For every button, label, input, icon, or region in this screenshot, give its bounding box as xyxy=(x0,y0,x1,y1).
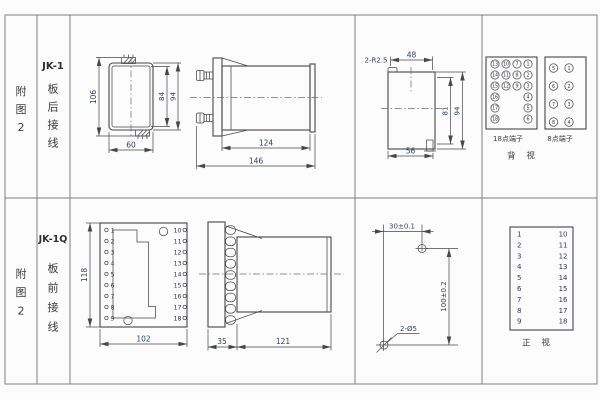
dim-100: 100±0.2 xyxy=(440,281,448,311)
fig-label-char: 图 xyxy=(16,103,27,116)
right-terminal-column: 10 11 12 13 14 15 16 17 18 xyxy=(173,227,186,322)
wiring-char: 后 xyxy=(48,101,59,114)
pin-number: 8 xyxy=(111,304,115,311)
table-grid xyxy=(5,15,597,384)
dim-81: 81 xyxy=(442,107,450,116)
table-cell: 18 xyxy=(559,318,568,326)
pin-number: 13 xyxy=(173,260,181,267)
pin-number: 11 xyxy=(173,238,181,245)
pin-number: 3 xyxy=(111,249,115,256)
figure-label-top: 附 图 2 xyxy=(16,84,27,134)
table-cell: 2 xyxy=(517,241,521,249)
model-label: JK-1Q xyxy=(38,234,68,245)
table-cell: 9 xyxy=(517,318,521,326)
wiring-label-top: JK-1 板 后 接 线 xyxy=(41,61,64,150)
case-side-view: 124 146 xyxy=(190,58,322,169)
terminal-8-caption: 8点端子 xyxy=(547,134,572,143)
pin-number: 10 xyxy=(173,227,181,234)
wiring-label-bottom: JK-1Q 板 前 接 线 xyxy=(38,234,68,334)
terminal-number: 4 xyxy=(526,95,529,101)
dim-60: 60 xyxy=(126,141,136,150)
table-cell: 10 xyxy=(559,231,568,239)
dim-118: 118 xyxy=(80,268,89,283)
dim-94: 94 xyxy=(170,92,178,101)
terminal-number: 4 xyxy=(567,120,570,126)
wiring-char: 接 xyxy=(48,119,59,132)
diagram-canvas: 附 图 2 JK-1 板 后 接 线 附 图 2 JK-1Q 板 前 接 线 xyxy=(0,0,600,400)
terminal-number: 9 xyxy=(515,84,518,90)
front-wiring-outline-view: 1 2 3 4 5 6 7 8 9 10 11 12 13 14 15 16 1… xyxy=(80,223,187,347)
left-terminal-column: 1 2 3 4 5 6 7 8 9 xyxy=(105,227,115,322)
terminal-number: 5 xyxy=(552,66,555,72)
dim-48: 48 xyxy=(407,51,417,60)
terminal-number: 17 xyxy=(492,106,498,112)
table-right-column: 10 11 12 13 14 15 16 17 18 xyxy=(559,231,568,326)
mounting-hole-view: 30±0.1 100±0.2 2-Ø5 xyxy=(372,223,458,353)
terminal-number: 8 xyxy=(515,73,518,79)
terminal-number: 6 xyxy=(526,117,529,123)
terminal-8-layout: 5 1 6 2 7 3 8 4 8点端子 xyxy=(545,57,586,143)
terminal-number: 10 xyxy=(503,62,509,68)
dim-94b: 94 xyxy=(454,106,462,115)
terminal-number: 18 xyxy=(492,117,498,123)
wiring-char: 线 xyxy=(48,320,59,334)
pin-number: 4 xyxy=(111,260,115,267)
pin-number: 17 xyxy=(173,304,181,311)
pin-number: 2 xyxy=(111,238,115,245)
table-cell: 13 xyxy=(559,263,568,271)
terminal-number: 7 xyxy=(552,102,555,108)
fig-label-char: 附 xyxy=(16,84,27,98)
terminal-number: 8 xyxy=(552,120,555,126)
terminal-number: 1 xyxy=(526,62,529,68)
terminal-number: 12 xyxy=(503,84,509,90)
table-cell: 12 xyxy=(559,252,568,260)
table-cell: 17 xyxy=(559,307,568,315)
table-cell: 6 xyxy=(517,285,522,293)
screw-column xyxy=(226,226,236,325)
dim-121: 121 xyxy=(276,337,291,346)
screw-terminal xyxy=(197,113,214,123)
table-cell: 7 xyxy=(517,296,521,304)
dim-124: 124 xyxy=(259,139,274,148)
terminal-number: 13 xyxy=(492,62,498,68)
wiring-char: 前 xyxy=(48,281,59,295)
pin-number: 1 xyxy=(111,227,115,234)
pin-number: 15 xyxy=(173,282,181,289)
rear-view-caption: 背 视 xyxy=(507,151,539,162)
pin-number: 5 xyxy=(111,271,115,278)
model-label: JK-1 xyxy=(41,61,64,72)
terminal-number: 2 xyxy=(567,84,570,90)
terminal-cells: 13 10 7 1 14 11 8 2 15 12 9 3 16 4 17 5 … xyxy=(491,60,532,123)
figure-label-bottom: 附 图 2 xyxy=(16,267,27,318)
terminal-18-caption: 18点端子 xyxy=(493,134,523,143)
table-cell: 5 xyxy=(517,274,521,282)
case-rear-outline-view: 106 84 94 60 xyxy=(89,55,181,154)
screw-terminal xyxy=(197,71,214,81)
pin-number: 12 xyxy=(173,249,181,256)
table-cell: 14 xyxy=(559,274,568,282)
fig-label-char: 图 xyxy=(16,286,27,299)
dim-106: 106 xyxy=(89,90,98,105)
terminal-number: 3 xyxy=(526,84,529,90)
drawing-sheet: 附 图 2 JK-1 板 后 接 线 附 图 2 JK-1Q 板 前 接 线 xyxy=(0,0,600,400)
pin-number: 14 xyxy=(173,271,181,278)
terminal-number: 3 xyxy=(567,102,570,108)
dim-30: 30±0.1 xyxy=(389,223,415,231)
terminal-number: 5 xyxy=(526,106,529,112)
wiring-char: 板 xyxy=(48,261,59,275)
dim-56: 56 xyxy=(406,147,416,156)
panel-cutout-view: 48 2-R2.5 81 94 56 xyxy=(365,51,466,160)
mounting-hole xyxy=(159,227,167,235)
table-cell: 3 xyxy=(517,252,521,260)
terminal-number: 11 xyxy=(503,73,509,79)
pin-number: 7 xyxy=(111,293,115,300)
table-cell: 8 xyxy=(517,307,521,315)
wiring-char: 接 xyxy=(48,301,59,314)
pin-number: 18 xyxy=(173,315,181,322)
table-cell: 1 xyxy=(517,231,521,239)
dim-102: 102 xyxy=(136,335,151,344)
table-cell: 11 xyxy=(559,241,568,249)
terminal-number: 6 xyxy=(552,84,555,90)
table-cell: 16 xyxy=(559,296,568,304)
front-side-view: 35 121 xyxy=(199,222,344,351)
terminal-table: 1 2 3 4 5 6 7 8 9 10 11 12 13 14 15 16 1… xyxy=(510,227,573,349)
fig-label-char: 附 xyxy=(16,267,27,281)
table-cell: 15 xyxy=(559,285,568,293)
hole-callout: 2-Ø5 xyxy=(400,325,417,333)
pin-number: 6 xyxy=(111,282,115,289)
table-cell: 4 xyxy=(517,263,522,271)
dim-84: 84 xyxy=(158,92,166,101)
dim-146: 146 xyxy=(249,157,264,166)
terminal-number: 16 xyxy=(492,95,498,101)
front-view-caption: 正 视 xyxy=(522,338,554,349)
wiring-char: 板 xyxy=(48,82,59,96)
wiring-char: 线 xyxy=(48,136,59,150)
terminal-cells: 5 1 6 2 7 3 8 4 xyxy=(549,64,573,126)
terminal-number: 2 xyxy=(526,73,529,79)
terminal-number: 7 xyxy=(515,62,518,68)
terminal-number: 1 xyxy=(567,66,570,72)
terminal-18-layout: 13 10 7 1 14 11 8 2 15 12 9 3 16 4 17 5 … xyxy=(486,57,537,143)
table-left-column: 1 2 3 4 5 6 7 8 9 xyxy=(517,231,522,326)
pin-number: 16 xyxy=(173,293,181,300)
terminal-number: 15 xyxy=(492,84,498,90)
fig-label-char: 2 xyxy=(18,305,25,318)
pin-number: 9 xyxy=(111,315,115,322)
fig-label-char: 2 xyxy=(18,121,25,134)
terminal-number: 14 xyxy=(492,73,498,79)
mounting-hole xyxy=(124,316,132,324)
radius-callout: 2-R2.5 xyxy=(365,57,388,65)
dim-35: 35 xyxy=(217,337,227,346)
